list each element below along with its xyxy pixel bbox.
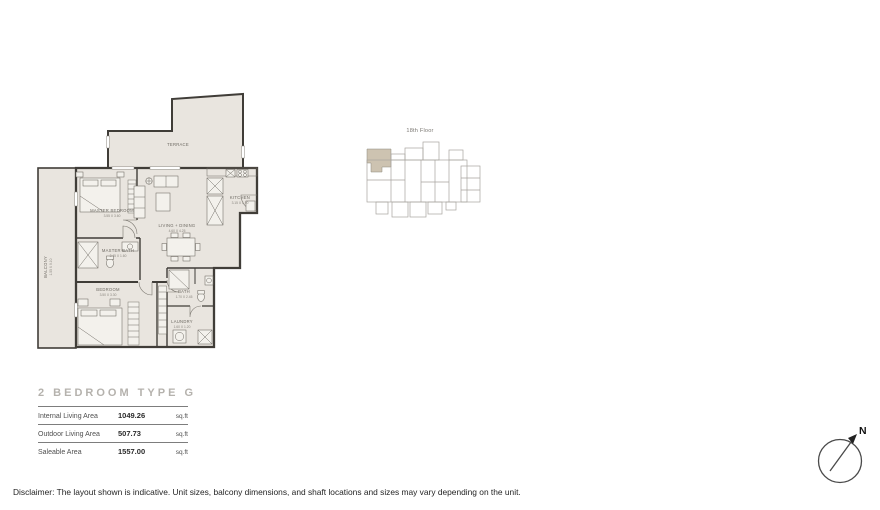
area-unit: sq.ft bbox=[176, 413, 188, 420]
north-label: N bbox=[859, 425, 867, 437]
room-dims-bath: 1.70 X 2.45 bbox=[176, 295, 193, 299]
bedroom-wardrobe-icon bbox=[128, 302, 139, 345]
room-label-bedroom: BEDROOM bbox=[96, 287, 120, 292]
compass-circle bbox=[819, 440, 862, 483]
room-label-living-dining: LIVING + DINING bbox=[159, 223, 196, 228]
terrace-area bbox=[108, 94, 243, 170]
room-label-terrace: TERRACE bbox=[167, 142, 189, 147]
room-dims-laundry: 1.60 X 1.20 bbox=[174, 325, 191, 329]
floor-plan-drawing: TERRACE MASTER BEDROOM 3.55 X 3.60 MASTE… bbox=[30, 80, 270, 362]
terrace-window bbox=[242, 146, 245, 158]
compass-needle bbox=[830, 438, 854, 471]
area-label: Outdoor Living Area bbox=[38, 431, 118, 438]
area-unit: sq.ft bbox=[176, 449, 188, 456]
area-value: 507.73 bbox=[118, 429, 158, 438]
room-dims-master-bedroom: 3.55 X 3.60 bbox=[104, 214, 121, 218]
room-label-laundry: LAUNDRY bbox=[171, 319, 193, 324]
master-bed-icon bbox=[76, 172, 124, 212]
compass-arrowhead bbox=[848, 434, 857, 444]
terrace-door bbox=[150, 167, 180, 170]
shaft-icon bbox=[207, 178, 223, 225]
area-label: Saleable Area bbox=[38, 449, 118, 456]
terrace-window bbox=[107, 136, 110, 148]
balcony-door bbox=[75, 192, 78, 206]
svg-text:BALCONY: BALCONY bbox=[43, 256, 48, 278]
room-label-bath: BATH bbox=[178, 289, 190, 294]
area-row-outdoor: Outdoor Living Area 507.73 sq.ft bbox=[38, 424, 188, 442]
area-value: 1049.26 bbox=[118, 411, 158, 420]
north-compass: N bbox=[808, 422, 880, 494]
room-label-kitchen: KITCHEN bbox=[230, 195, 250, 200]
area-row-internal: Internal Living Area 1049.26 sq.ft bbox=[38, 406, 188, 424]
room-label-master-bedroom: MASTER BEDROOM bbox=[90, 208, 134, 213]
key-plan-floor-label: 18th Floor bbox=[406, 128, 433, 134]
area-value: 1557.00 bbox=[118, 447, 158, 456]
room-dims-living-dining: 4.60 X 4.25 bbox=[169, 229, 186, 233]
area-row-saleable: Saleable Area 1557.00 sq.ft bbox=[38, 442, 188, 460]
bedroom-window bbox=[112, 167, 134, 169]
floorplan-sheet: TERRACE MASTER BEDROOM 3.55 X 3.60 MASTE… bbox=[0, 0, 880, 510]
unit-type-title: 2 BEDROOM TYPE G bbox=[38, 387, 188, 399]
room-dims-kitchen: 3.15 X 1.90 bbox=[232, 201, 249, 205]
key-plan: 18th Floor bbox=[358, 120, 490, 224]
title-block: 2 BEDROOM TYPE G Internal Living Area 10… bbox=[38, 387, 188, 460]
room-dims-master-bath: 2.45 X 1.60 bbox=[110, 254, 127, 258]
area-label: Internal Living Area bbox=[38, 413, 118, 420]
area-unit: sq.ft bbox=[176, 431, 188, 438]
room-dims-bedroom: 3.50 X 3.30 bbox=[100, 293, 117, 297]
balcony-door bbox=[75, 303, 78, 317]
disclaimer-text: Disclaimer: The layout shown is indicati… bbox=[13, 487, 873, 497]
svg-text:1.55 X 9.10: 1.55 X 9.10 bbox=[49, 258, 53, 275]
key-plan-unit-highlight bbox=[367, 149, 391, 172]
room-label-master-bath: MASTER BATH bbox=[102, 248, 134, 253]
